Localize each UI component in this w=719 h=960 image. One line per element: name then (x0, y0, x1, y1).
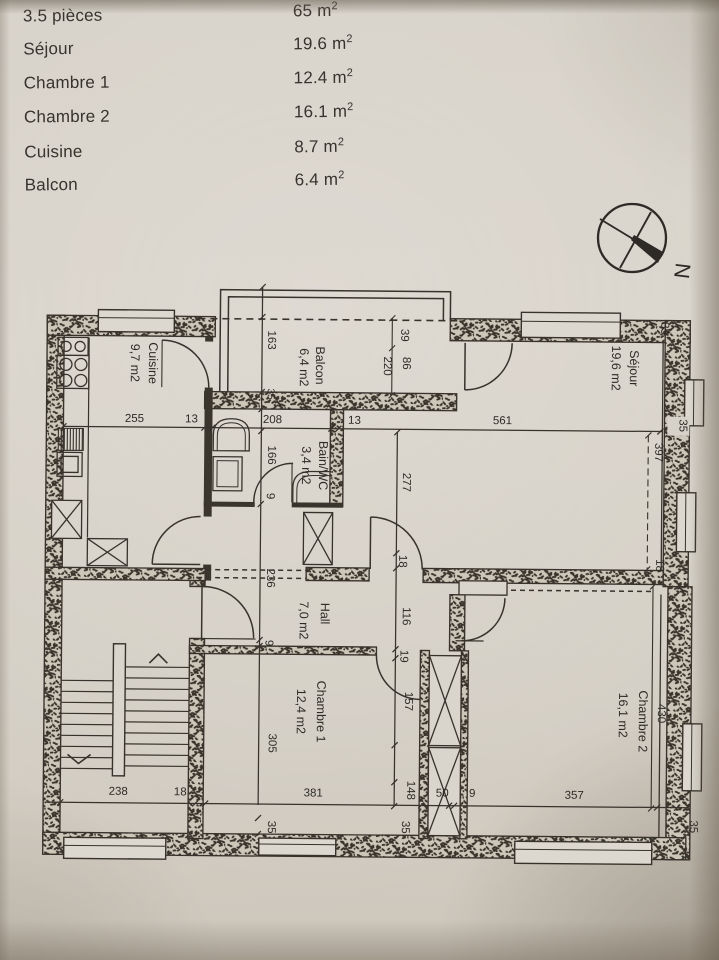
svg-text:166: 166 (265, 445, 277, 464)
svg-text:86: 86 (400, 357, 412, 370)
svg-text:561: 561 (493, 415, 512, 427)
svg-text:236: 236 (264, 568, 276, 587)
svg-text:Séjour: Séjour (627, 350, 641, 386)
svg-text:50: 50 (436, 788, 449, 800)
svg-text:116: 116 (400, 607, 412, 625)
svg-text:9: 9 (469, 788, 476, 800)
svg-text:430: 430 (655, 704, 667, 723)
svg-text:35: 35 (399, 821, 411, 834)
svg-text:357: 357 (565, 790, 584, 802)
svg-text:35: 35 (265, 821, 277, 834)
svg-text:13: 13 (185, 413, 198, 425)
svg-text:12,4 m2: 12,4 m2 (294, 689, 308, 734)
svg-text:9,7 m2: 9,7 m2 (128, 344, 142, 382)
svg-text:381: 381 (304, 787, 323, 799)
svg-text:35: 35 (265, 389, 276, 401)
svg-text:397: 397 (652, 443, 664, 462)
svg-text:18: 18 (396, 555, 408, 568)
svg-text:238: 238 (109, 786, 128, 798)
svg-text:277: 277 (400, 473, 412, 492)
svg-text:19: 19 (397, 650, 409, 663)
svg-text:35: 35 (676, 419, 688, 432)
svg-text:9: 9 (263, 640, 275, 647)
svg-text:255: 255 (125, 413, 144, 425)
svg-text:18: 18 (653, 559, 665, 572)
svg-text:13: 13 (348, 415, 361, 427)
svg-text:19,6 m2: 19,6 m2 (609, 345, 623, 390)
svg-text:6,4 m2: 6,4 m2 (297, 348, 311, 386)
svg-text:18: 18 (174, 786, 187, 798)
svg-text:220: 220 (381, 356, 393, 375)
svg-text:39: 39 (398, 329, 410, 342)
svg-text:7,0 m2: 7,0 m2 (297, 601, 311, 639)
svg-text:305: 305 (266, 734, 278, 753)
svg-text:157: 157 (402, 692, 414, 711)
svg-text:9: 9 (264, 493, 276, 500)
svg-text:35: 35 (658, 322, 670, 335)
svg-text:Cuisine: Cuisine (146, 342, 160, 384)
svg-text:148: 148 (404, 781, 416, 800)
svg-text:3,4 m2: 3,4 m2 (299, 446, 313, 484)
svg-text:Hall: Hall (318, 603, 332, 625)
svg-text:Balcon: Balcon (313, 346, 327, 384)
svg-text:16,1 m2: 16,1 m2 (616, 693, 630, 738)
svg-text:163: 163 (265, 330, 277, 349)
svg-text:Chambre 1: Chambre 1 (314, 681, 329, 743)
svg-text:208: 208 (263, 414, 282, 426)
svg-text:Chambre 2: Chambre 2 (636, 690, 651, 752)
svg-text:Bain/WC: Bain/WC (316, 441, 330, 490)
